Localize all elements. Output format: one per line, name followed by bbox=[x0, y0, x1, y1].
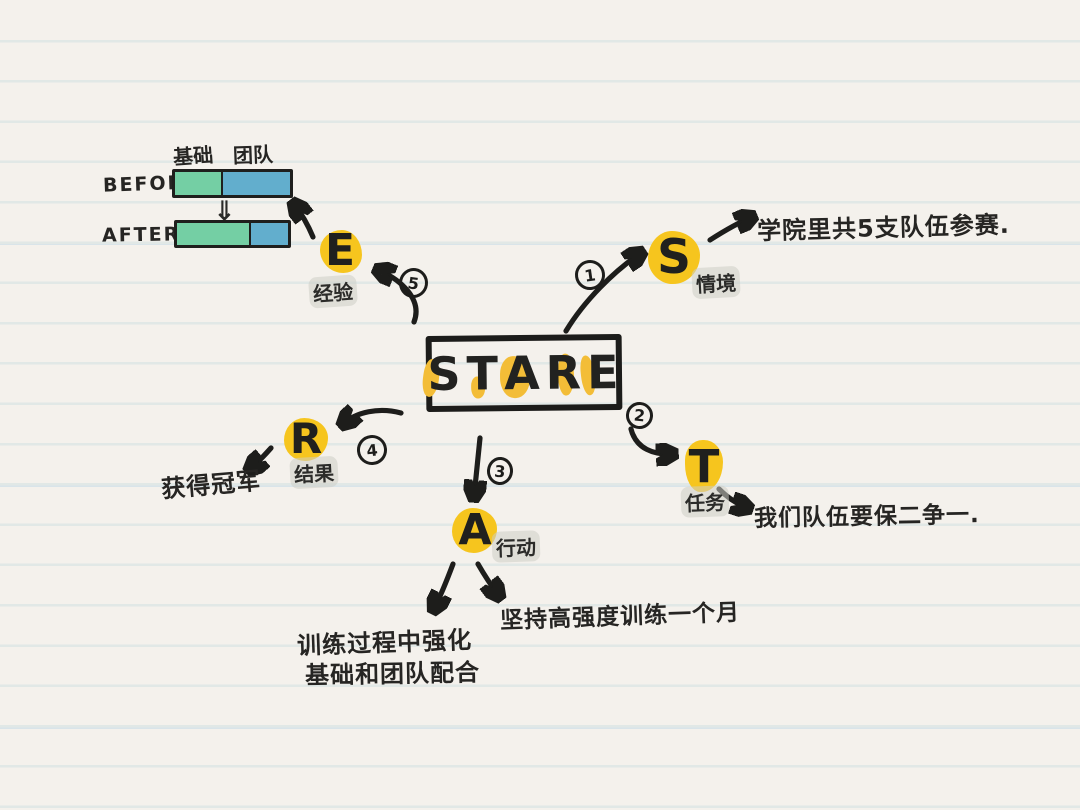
note-action-right: 坚持高强度训练一个月 bbox=[499, 593, 740, 635]
mindmap-canvas: S T A R E 1 S 情境 学院里共5支队伍参赛. 2 T 任务 我们队伍… bbox=[0, 0, 1080, 810]
arrow-a-to-right-note bbox=[478, 564, 499, 596]
before-basics-segment bbox=[175, 172, 223, 195]
arrow-e-to-chart bbox=[294, 204, 313, 237]
node-a: A bbox=[451, 506, 499, 554]
step-number-4: 4 bbox=[356, 434, 389, 467]
arrow-box-to-r bbox=[343, 410, 401, 424]
step-number-1: 1 bbox=[573, 258, 607, 292]
before-team-segment bbox=[223, 172, 290, 195]
after-bar bbox=[174, 220, 291, 248]
node-s-label: 情境 bbox=[691, 266, 741, 299]
arrow-box-to-a bbox=[474, 438, 480, 497]
arrow-a-to-left-note bbox=[434, 564, 453, 609]
chart-column-label-team: 团队 bbox=[233, 138, 274, 168]
stare-letter-t: T bbox=[464, 350, 502, 396]
chart-row-label-after: AFTER bbox=[102, 223, 181, 246]
after-team-segment bbox=[251, 223, 288, 245]
note-action-left-line2: 基础和团队配合 bbox=[305, 652, 481, 690]
step-number-3: 3 bbox=[486, 456, 514, 486]
note-result: 获得冠军 bbox=[160, 461, 263, 505]
node-r: R bbox=[282, 416, 330, 462]
after-basics-segment bbox=[177, 223, 251, 245]
arrow-s-to-note bbox=[710, 217, 752, 240]
stare-letter-s: S bbox=[425, 351, 465, 397]
stare-letter-e: E bbox=[585, 349, 623, 395]
node-e-label: 经验 bbox=[308, 274, 358, 308]
central-topic-stare: S T A R E bbox=[426, 334, 623, 412]
before-bar bbox=[172, 169, 293, 198]
note-task: 我们队伍要保二争一. bbox=[754, 495, 980, 533]
stare-letter-a: A bbox=[502, 350, 544, 396]
node-e: E bbox=[317, 227, 363, 275]
node-a-label: 行动 bbox=[491, 530, 540, 563]
step-number-5: 5 bbox=[397, 266, 430, 300]
chart-column-label-basics: 基础 bbox=[172, 139, 214, 171]
arrow-box-to-t bbox=[631, 429, 673, 454]
note-situation: 学院里共5支队伍参赛. bbox=[757, 205, 1011, 247]
stare-letter-r: R bbox=[543, 349, 585, 395]
node-t: T bbox=[683, 438, 725, 494]
step-number-2: 2 bbox=[625, 401, 655, 431]
